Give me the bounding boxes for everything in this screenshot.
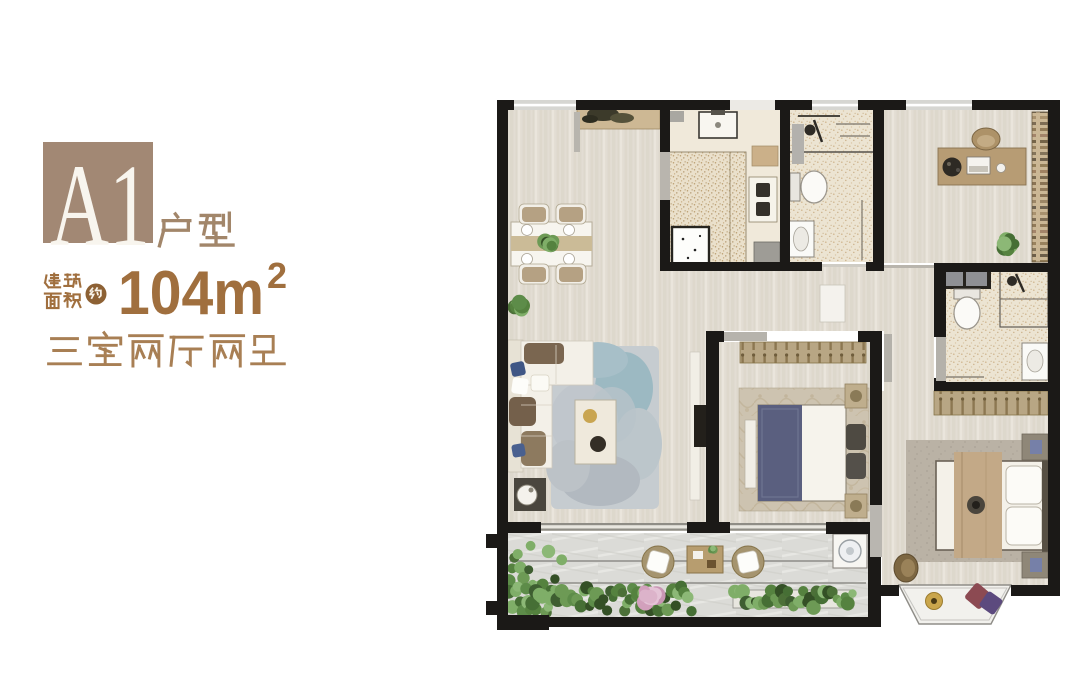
svg-text:2: 2 bbox=[267, 255, 287, 296]
svg-text:A1: A1 bbox=[50, 140, 150, 271]
svg-text:104m: 104m bbox=[118, 259, 264, 328]
